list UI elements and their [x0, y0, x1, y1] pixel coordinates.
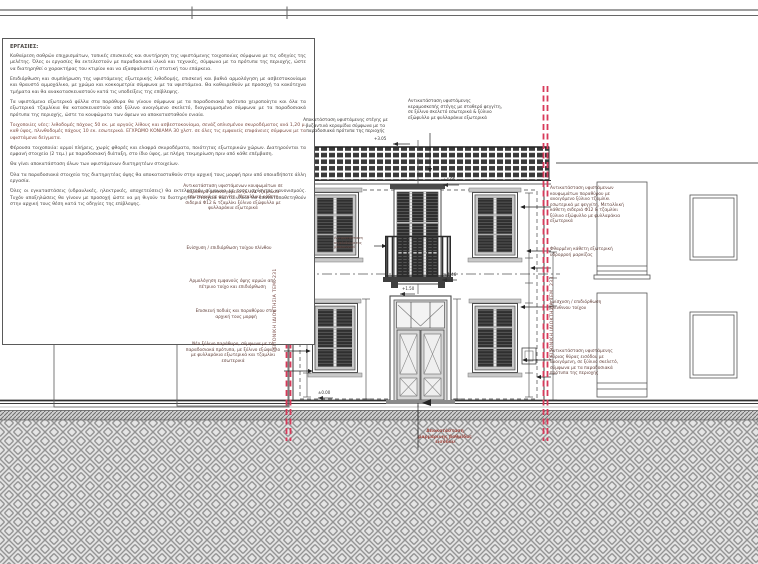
annotation-entrance-step: Αποκατάσταση μαρμάρινης βαθμίδας εισόδου	[413, 429, 477, 446]
ground-fine-hatch-band	[0, 411, 758, 421]
balcony-slab	[383, 277, 453, 282]
sheet-top-border	[0, 7, 758, 20]
notes-paragraph: Επιδιόρθωση και συμπλήρωση της υφιστάμεν…	[10, 77, 306, 96]
annotation-wall-brick-left: Ενίσχυση / επιδιόρθωση τοίχου πλίνθου	[185, 246, 273, 252]
ground-section	[0, 401, 758, 564]
ground-floor-openings	[308, 296, 536, 404]
annotation-roof-right: Αντικατάσταση υφιστάμενης κεραμοσκεπής σ…	[408, 99, 502, 121]
door-transom	[397, 302, 445, 328]
annotation-gutter-right: Φθαρμένη κάθετη εξωτερική υδρορροή μαρκί…	[550, 247, 620, 258]
annotation-windows-right: Αντικατάσταση υφιστάμενων κουφωμάτων παρ…	[550, 186, 628, 225]
annotation-balcony-railing: Αντικατάσταση κιγκλιδώματος μπαλκονιού	[334, 236, 376, 250]
annotation-entrance-door-right: Αντικατάσταση υφιστάμενης κύριας θύρας ε…	[550, 349, 622, 377]
roof-tiles	[288, 147, 549, 180]
annotation-wall-brick-right: Ενίσχυση / επιδιόρθωση πλίνθινου τοίχου	[550, 300, 622, 311]
door-threshold	[386, 400, 455, 404]
elevation-door: +1.50	[402, 286, 414, 291]
elevation-roof-left: +3.05	[374, 136, 386, 141]
annotation-windows-left: Αντικατάσταση υφιστάμενων κουφωμάτων σε …	[183, 184, 283, 212]
notes-paragraph: Τα υφιστάμενα εξωτερικά φύλλα στα παράθυ…	[10, 100, 306, 119]
notes-paragraph: Καθαίρεση σαθρών επιχρισμάτων, τοπικές ε…	[10, 54, 306, 73]
balcony-corbel	[438, 282, 445, 288]
balcony-door-cornice	[390, 184, 445, 189]
notes-paragraph: Τοιχοποιίες νέες: λιθοδομές πάχους 50 εκ…	[10, 123, 306, 142]
notes-paragraph: Φέρουσα τοιχοποιία: αρμοί πλήρεις, χωρίς…	[10, 146, 306, 159]
window-ground-left	[313, 304, 358, 373]
ground-weave-hatch	[0, 421, 758, 564]
elevation-roof-right: +4.05	[443, 177, 455, 182]
elevation-balcony: +1.46	[444, 272, 456, 277]
notes-paragraph: Θα γίνει αποκατάσταση όλων των υφιστάμεν…	[10, 162, 306, 168]
annotation-sill-repair-left: Επισκευή ποδιάς και παραθύρου στην αρχικ…	[192, 309, 280, 320]
entrance-door	[386, 296, 455, 404]
elevation-ground: ±0.00	[318, 390, 330, 395]
annotation-new-window-left: Νέο ξύλινο παράθυρο, σύμφωνα με τα παραδ…	[183, 342, 283, 364]
window-upper-right	[473, 192, 518, 257]
balcony-corbel	[391, 282, 398, 288]
balcony-railing	[385, 236, 451, 277]
elevation-drawing-sheet: ΕΡΓΑΣΙΕΣ: Καθαίρεση σαθρών επιχρισμάτων,…	[0, 0, 758, 564]
notes-heading: ΕΡΓΑΣΙΕΣ:	[10, 44, 306, 51]
boundary-label-right: ΓΕΙΤΟΝΙΚΗ ΙΔΙΟΚΤΗΣΙΑ ΤΕΜ. 233	[550, 276, 555, 360]
annotation-roof-left: Αποκατάσταση υφιστάμενης στέγης με βυζαν…	[297, 118, 394, 135]
boundary-label-left: ΓΕΙΤΟΝΙΚΗ ΙΔΙΟΚΤΗΣΙΑ ΤΕΜ. 231	[273, 268, 278, 352]
annotation-pointing-left: Αρμολόγηση εμφανούς όψης αρμών από πέτρι…	[185, 279, 280, 290]
window-ground-right	[473, 304, 518, 373]
